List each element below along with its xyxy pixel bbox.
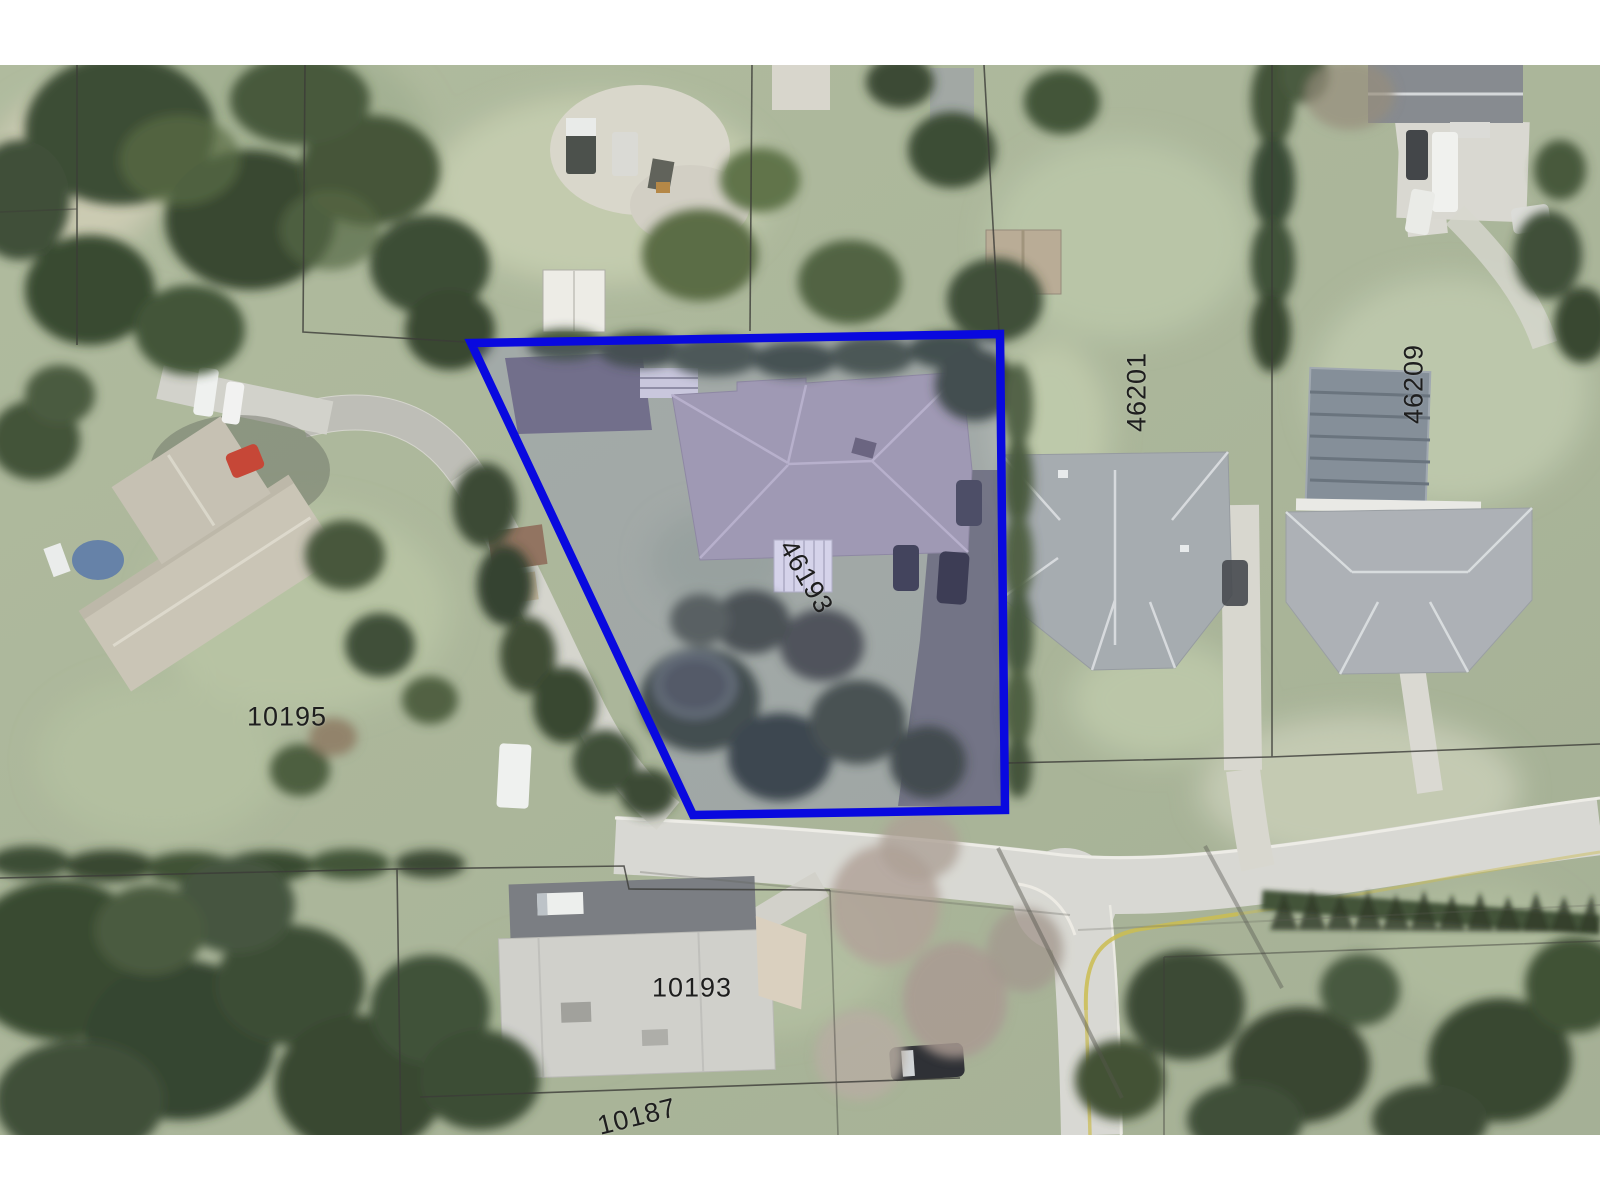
aerial-photo: 10195 46193 46201 46209 10193 10187 xyxy=(0,65,1600,1135)
aerial-map-page: 10195 46193 46201 46209 10193 10187 xyxy=(0,0,1600,1200)
aerial-photo-art xyxy=(0,65,1600,1135)
parcel-label-46209: 46209 xyxy=(1399,344,1430,424)
parcel-label-46201: 46201 xyxy=(1122,352,1153,432)
parcel-label-10195: 10195 xyxy=(247,702,327,733)
parcel-label-10193: 10193 xyxy=(652,973,732,1004)
